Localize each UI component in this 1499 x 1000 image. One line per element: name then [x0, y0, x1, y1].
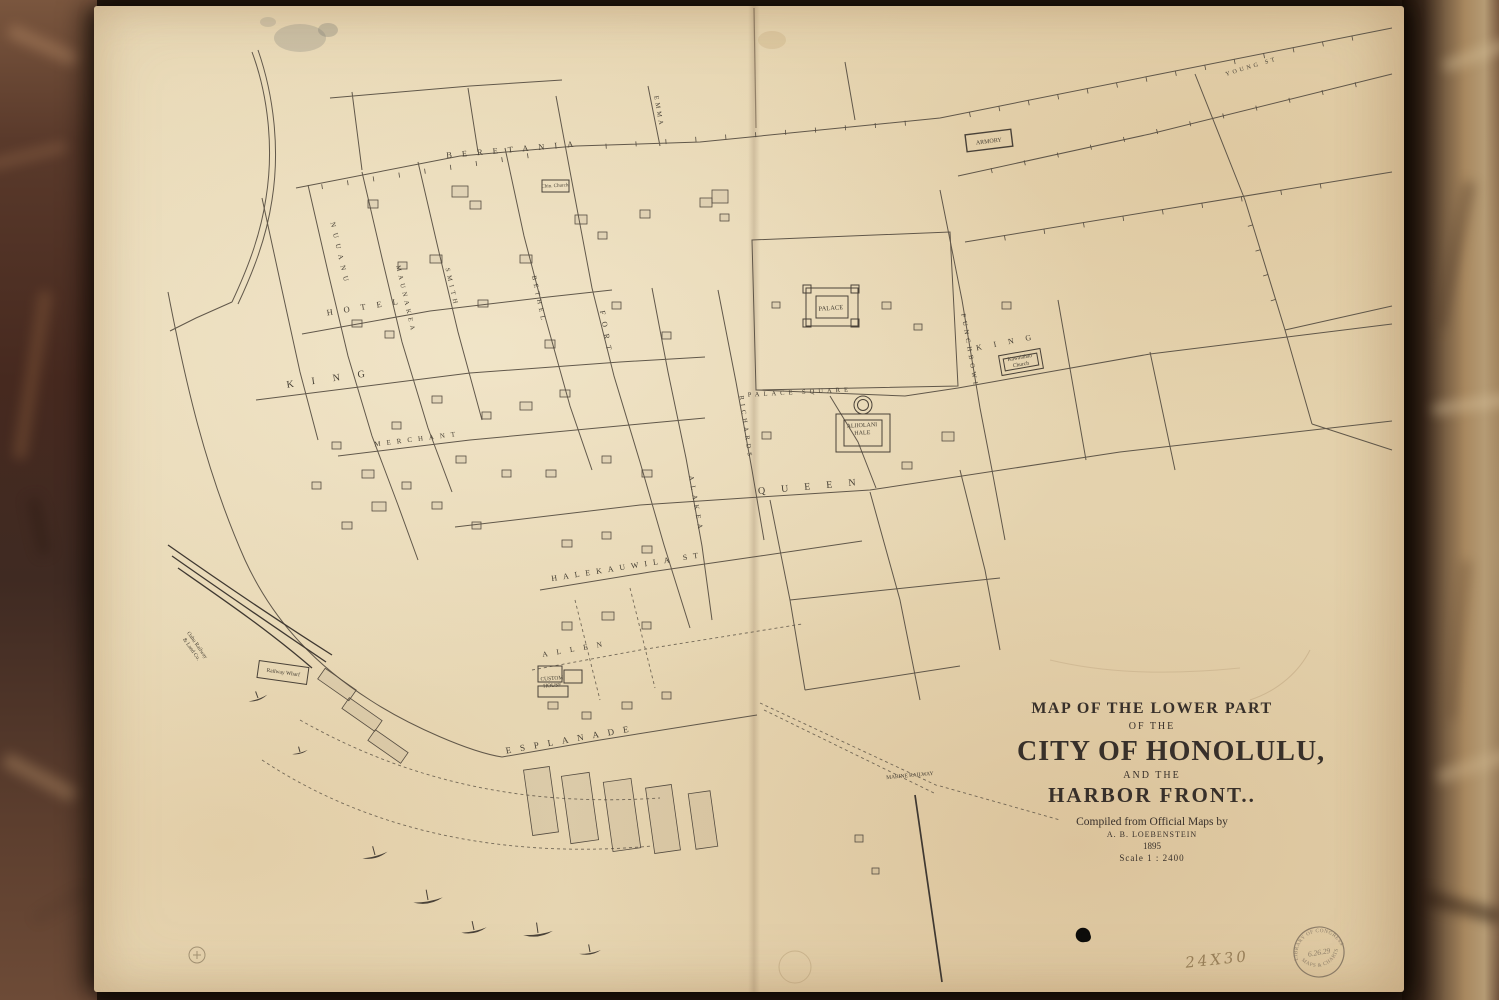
- street-label: ALAKEA: [687, 475, 705, 534]
- building-label: KawaiahaoChurch: [1007, 353, 1034, 370]
- building-label: Oahu Railway& Land Co.: [180, 631, 209, 665]
- title-line: AND THE: [1017, 770, 1287, 781]
- building-label: Chin. Church: [541, 183, 569, 189]
- credit-line: Compiled from Official Maps by: [1017, 816, 1287, 829]
- building-label: ARMORY: [976, 137, 1003, 146]
- street-label: BETHEL: [530, 275, 547, 324]
- street-label: FORT: [598, 310, 615, 358]
- boat: [411, 887, 443, 906]
- street-label: PALACE SQUARE: [748, 386, 853, 398]
- ink-dot: [1076, 928, 1091, 943]
- street-label: HOTEL: [326, 295, 409, 318]
- street-label: EMMA: [652, 95, 664, 128]
- street-label: SMITH: [444, 267, 460, 308]
- title-block: MAP OF THE LOWER PART OF THE CITY OF HON…: [1017, 700, 1287, 864]
- stamp-date: 6.26.29: [1307, 946, 1331, 959]
- boat: [246, 688, 268, 704]
- building-label: ALIIOLANIHALE: [846, 422, 877, 437]
- street-label: MERCHANT: [374, 430, 462, 449]
- building-label: CUSTOMHOUSE: [540, 675, 564, 690]
- pencil-mark: [189, 947, 205, 963]
- scale-line: Scale 1 : 2400: [1017, 854, 1287, 864]
- street-label: HALEKAUWILA ST: [551, 550, 705, 583]
- boat: [522, 921, 554, 939]
- building-label: Railway Wharf: [266, 667, 300, 679]
- building-label: PALACE: [818, 304, 843, 313]
- street-label: ESPLANADE: [505, 723, 638, 756]
- boat: [578, 943, 601, 957]
- railway-lines: [168, 545, 942, 982]
- map-labels: BERETANIAHOTELKINGMERCHANTQUEENHALEKAUWI…: [180, 56, 1279, 781]
- title-line: MAP OF THE LOWER PART: [1017, 700, 1287, 718]
- year-line: 1895: [1017, 842, 1287, 852]
- title-line: OF THE: [1017, 721, 1287, 732]
- boat: [459, 918, 487, 935]
- author-line: A. B. LOEBENSTEIN: [1017, 831, 1287, 840]
- boat: [291, 745, 308, 756]
- street-label: BERETANIA: [446, 138, 584, 160]
- lot-tick-marks: [322, 36, 1357, 301]
- street-label: ALLEN: [542, 638, 612, 659]
- library-of-congress-stamp: LIBRARY OF CONGRESS MAPS & CHARTS 6.26.2…: [1285, 919, 1353, 985]
- street-label: NUUANU: [329, 221, 352, 287]
- boat: [360, 843, 388, 861]
- title-main: CITY OF HONOLULU,: [1017, 737, 1287, 768]
- poster-photo: BERETANIAHOTELKINGMERCHANTQUEENHALEKAUWI…: [0, 0, 1499, 1000]
- title-line: HARBOR FRONT..: [1017, 784, 1287, 807]
- building-label: MARINE RAILWAY: [886, 771, 934, 781]
- street-label: KING: [286, 366, 384, 390]
